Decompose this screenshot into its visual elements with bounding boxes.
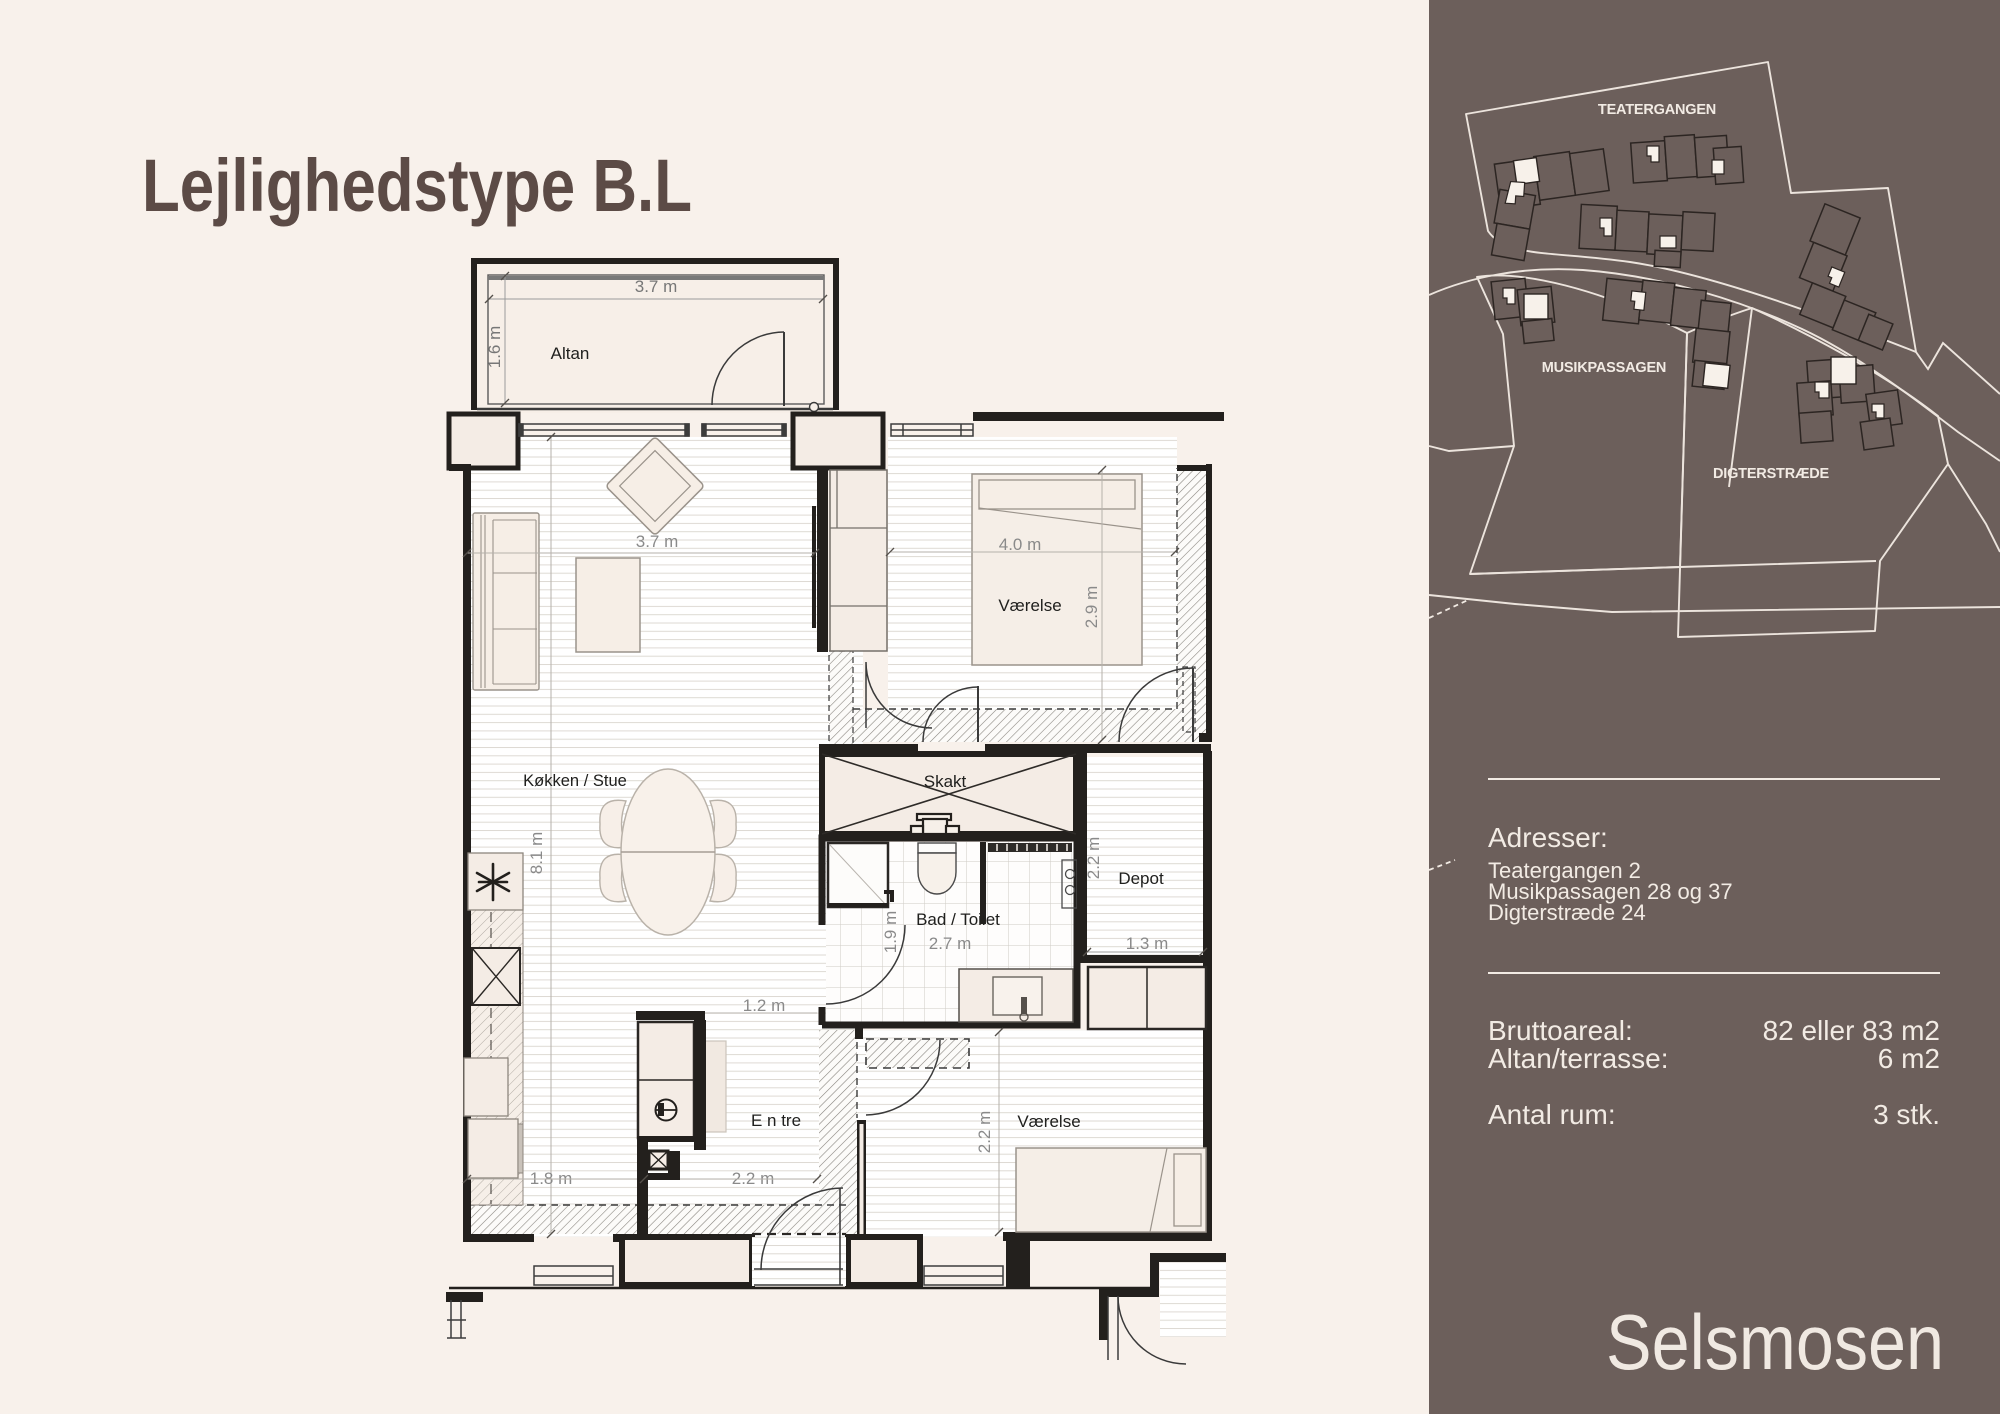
svg-text:Værelse: Værelse [1017, 1112, 1080, 1131]
svg-text:1.3 m: 1.3 m [1126, 934, 1169, 953]
svg-text:TEATERGANGEN: TEATERGANGEN [1598, 102, 1716, 118]
svg-text:Digterstræde 24: Digterstræde 24 [1488, 900, 1646, 925]
svg-text:Altan: Altan [551, 344, 590, 363]
svg-text:8.1 m: 8.1 m [527, 832, 546, 875]
svg-text:2.9 m: 2.9 m [1082, 586, 1101, 629]
svg-text:DIGTERSTRÆDE: DIGTERSTRÆDE [1713, 466, 1830, 482]
svg-text:E n tre: E n tre [751, 1111, 801, 1130]
svg-text:1.6 m: 1.6 m [485, 326, 504, 369]
svg-text:Adresser:: Adresser: [1488, 822, 1608, 853]
svg-text:2.7 m: 2.7 m [929, 934, 972, 953]
svg-text:1.9 m: 1.9 m [881, 911, 900, 954]
svg-text:Antal rum:: Antal rum: [1488, 1099, 1616, 1130]
svg-text:3 stk.: 3 stk. [1873, 1099, 1940, 1130]
svg-text:MUSIKPASSAGEN: MUSIKPASSAGEN [1542, 360, 1666, 376]
svg-text:Skakt: Skakt [924, 772, 967, 791]
svg-text:1.2 m: 1.2 m [743, 996, 786, 1015]
svg-text:Køkken / Stue: Køkken / Stue [523, 772, 627, 790]
svg-text:Værelse: Værelse [998, 596, 1061, 615]
svg-text:3.7 m: 3.7 m [635, 277, 678, 296]
svg-text:Depot: Depot [1118, 869, 1164, 888]
svg-text:Lejlighedstype B.L: Lejlighedstype B.L [142, 144, 692, 227]
svg-text:3.7 m: 3.7 m [636, 532, 679, 551]
svg-text:Bad / Toilet: Bad / Toilet [916, 910, 1000, 929]
svg-text:Altan/terrasse:: Altan/terrasse: [1488, 1043, 1669, 1074]
svg-text:Selsmosen: Selsmosen [1606, 1298, 1944, 1386]
svg-text:2.2 m: 2.2 m [975, 1111, 994, 1154]
svg-text:Bruttoareal:: Bruttoareal: [1488, 1015, 1633, 1046]
svg-text:6 m2: 6 m2 [1878, 1043, 1940, 1074]
svg-text:82 eller 83 m2: 82 eller 83 m2 [1763, 1015, 1940, 1046]
svg-text:4.0 m: 4.0 m [999, 535, 1042, 554]
